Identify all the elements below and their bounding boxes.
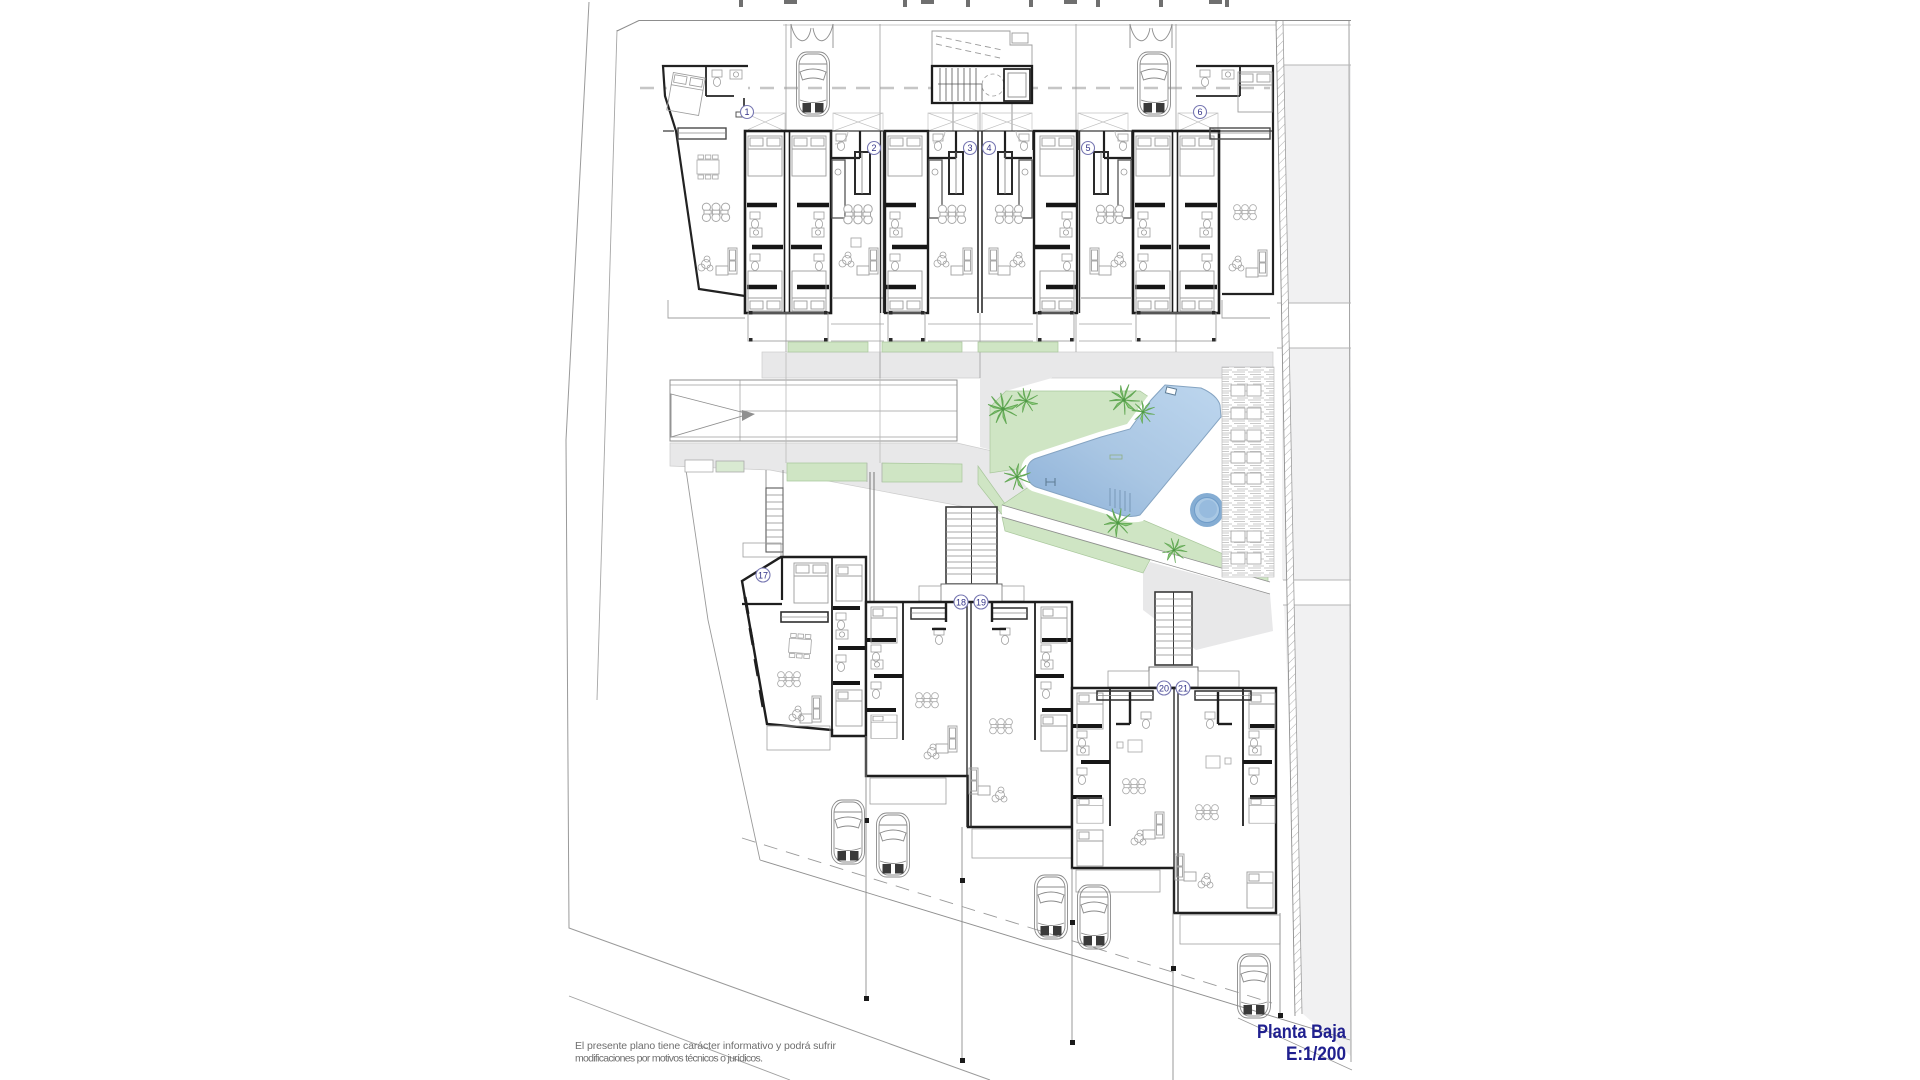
svg-text:20: 20 [1159,684,1169,694]
svg-text:5: 5 [1085,143,1090,153]
svg-text:3: 3 [967,143,972,153]
svg-text:modificaciones por motivos téc: modificaciones por motivos técnicos o ju… [575,1053,763,1065]
svg-text:Planta Baja: Planta Baja [1257,1021,1346,1043]
svg-text:1: 1 [744,107,749,117]
svg-text:21: 21 [1178,684,1188,694]
svg-text:19: 19 [976,598,986,608]
svg-text:6: 6 [1197,107,1202,117]
svg-text:2: 2 [871,143,876,153]
svg-text:17: 17 [758,571,768,581]
svg-text:4: 4 [986,143,991,153]
svg-text:E:1/200: E:1/200 [1286,1043,1346,1065]
svg-text:18: 18 [956,598,966,608]
svg-text:El presente plano tiene caráct: El presente plano tiene carácter informa… [575,1040,837,1052]
